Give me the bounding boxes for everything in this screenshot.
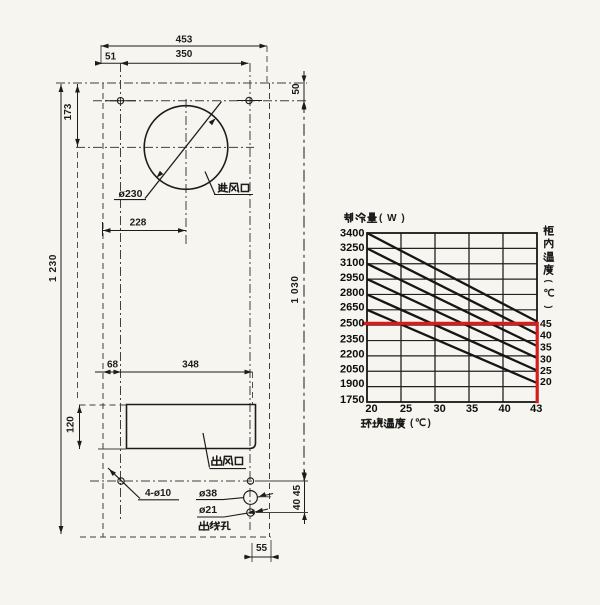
svg-text:35: 35: [540, 342, 552, 354]
svg-text:ø230: ø230: [119, 188, 143, 200]
svg-text:25: 25: [540, 365, 552, 377]
svg-text:3400: 3400: [340, 227, 364, 239]
svg-text:2800: 2800: [340, 287, 364, 299]
svg-text:2950: 2950: [340, 272, 364, 284]
svg-text:43: 43: [530, 403, 542, 415]
svg-text:1900: 1900: [340, 378, 364, 390]
svg-text:(: (: [544, 280, 554, 283]
svg-text:℃: ℃: [543, 289, 554, 300]
svg-text:ø38: ø38: [199, 487, 217, 499]
svg-text:25: 25: [400, 403, 412, 415]
svg-text:4-ø10: 4-ø10: [145, 488, 172, 499]
svg-text:350: 350: [176, 49, 193, 60]
svg-text:40: 40: [292, 499, 303, 511]
svg-text:45: 45: [540, 318, 552, 330]
svg-text:40: 40: [540, 330, 552, 342]
svg-text:45: 45: [292, 485, 303, 497]
svg-text:ø21: ø21: [199, 504, 217, 516]
svg-text:20: 20: [540, 376, 552, 388]
svg-text:2200: 2200: [340, 349, 364, 361]
svg-text:1750: 1750: [340, 394, 364, 406]
svg-text:1 230: 1 230: [48, 254, 59, 282]
svg-text:3250: 3250: [340, 242, 364, 254]
svg-text:2050: 2050: [340, 363, 364, 375]
svg-text:20: 20: [365, 403, 377, 415]
svg-text:30: 30: [433, 403, 445, 415]
svg-text:51: 51: [105, 51, 117, 62]
svg-text:2350: 2350: [340, 334, 364, 346]
svg-text:2650: 2650: [340, 301, 364, 313]
svg-text:120: 120: [66, 416, 77, 433]
svg-text:453: 453: [176, 35, 193, 46]
svg-text:35: 35: [466, 403, 478, 415]
svg-text:173: 173: [63, 103, 74, 120]
svg-text:50: 50: [291, 83, 302, 95]
svg-text:55: 55: [256, 543, 268, 554]
svg-text:30: 30: [540, 354, 552, 366]
svg-text:40: 40: [498, 403, 510, 415]
svg-text:(℃): (℃): [410, 418, 432, 429]
svg-text:( W ): ( W ): [379, 213, 406, 224]
svg-text:): ): [544, 306, 554, 309]
svg-text:68: 68: [107, 360, 119, 371]
svg-text:348: 348: [182, 360, 199, 371]
svg-text:228: 228: [130, 217, 147, 228]
svg-text:3100: 3100: [340, 257, 364, 269]
svg-text:1 030: 1 030: [290, 275, 301, 303]
svg-text:2500: 2500: [340, 318, 364, 330]
